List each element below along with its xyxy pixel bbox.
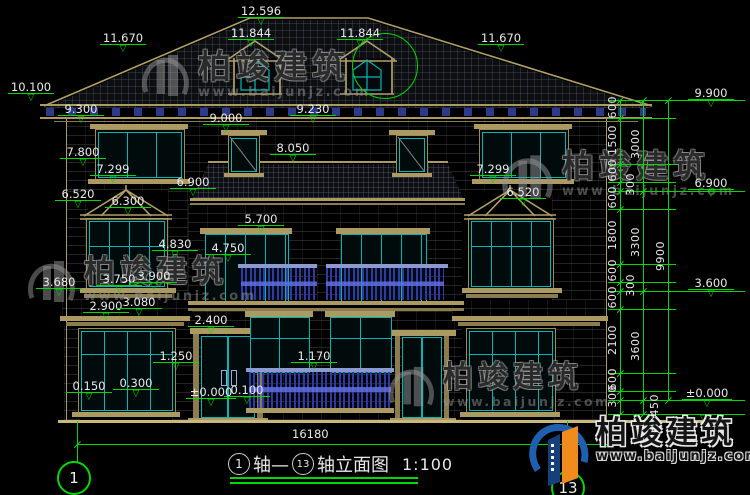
level-annotation: 6.520▽ (55, 188, 101, 209)
level-annotation: 11.670▽ (478, 32, 524, 53)
level-annotation: 6.300▽ (105, 195, 151, 216)
level-annotation: 10.100▽ (8, 81, 54, 102)
level-annotation: 3.080▽ (116, 296, 162, 317)
level-annotation: 6.900▽ (170, 176, 216, 197)
level-annotation-right: ±0.000▽ (682, 387, 732, 408)
elevation-drawing-sheet: 柏竣建筑 www.baijunjz.com 柏竣建筑 www.baijunjz.… (0, 0, 750, 495)
title-axis-circle-start: 1 (228, 453, 250, 475)
dim-floor: 3300 (629, 227, 642, 257)
dim-segment: 1500 (606, 125, 619, 155)
dim-total-height: 9900 (654, 241, 667, 271)
drawing-title: 1 轴— 13 轴立面图 1:100 (228, 451, 453, 477)
dim-floor: 3000 (629, 129, 642, 159)
level-annotation: 4.750▽ (205, 242, 251, 263)
dim-segment: 600 (606, 186, 619, 209)
dim-segment: 600 (606, 286, 619, 309)
level-annotation: 8.050▽ (270, 142, 316, 163)
dim-segment: 2100 (606, 325, 619, 355)
dim-segment: 1800 (606, 220, 619, 250)
level-annotation: 11.844▽ (337, 27, 383, 48)
level-annotation: 5.700▽ (238, 213, 284, 234)
level-annotation: 3.900▽ (131, 270, 177, 291)
dim-segment: 300 (606, 385, 619, 408)
level-annotation-right: 6.900▽ (688, 177, 734, 198)
level-annotation: 0.150▽ (66, 380, 112, 401)
title-scale: 1:100 (402, 455, 453, 474)
brand-name: 柏竣建筑 (596, 418, 750, 449)
brand-logo-icon (528, 418, 590, 490)
title-underline (230, 482, 418, 484)
level-annotation: 9.300▽ (58, 103, 104, 124)
level-annotation: 12.596▽ (238, 5, 284, 26)
title-text: 轴— (253, 451, 289, 477)
level-annotation: 7.299▽ (90, 163, 136, 184)
level-annotation: 3.680▽ (36, 276, 82, 297)
level-annotation-right: 9.900▽ (688, 87, 734, 108)
title-text: 轴立面图 (317, 451, 389, 477)
level-annotation: 11.844▽ (228, 27, 274, 48)
level-annotation: 9.000▽ (203, 112, 249, 133)
level-annotation: 4.830▽ (152, 238, 198, 259)
dim-segment: 600 (606, 96, 619, 119)
level-annotation: 1.170▽ (291, 350, 337, 371)
level-annotation: 11.670▽ (100, 32, 146, 53)
title-underline (230, 477, 418, 479)
axis-bubble-1: 1 (57, 461, 91, 495)
dim-segment: 600 (606, 159, 619, 182)
level-annotation: 0.100▽ (224, 384, 270, 405)
level-annotation: 9.230▽ (290, 103, 336, 124)
level-annotation: 7.299▽ (470, 163, 516, 184)
dim-floor: 450 (648, 394, 661, 417)
level-annotation-right: 3.600▽ (688, 277, 734, 298)
level-annotation: 2.400▽ (188, 314, 234, 335)
title-axis-circle-end: 13 (292, 453, 314, 475)
level-annotation: 6.520▽ (500, 186, 546, 207)
dim-floor: 3600 (629, 331, 642, 361)
brand-logo: 柏竣建筑 www.baijunjz.com (528, 418, 750, 490)
level-annotation: 0.300▽ (113, 377, 159, 398)
dim-segment: 300 (624, 274, 637, 297)
dim-segment: 600 (606, 259, 619, 282)
dim-total-width: 16180 (292, 427, 329, 441)
brand-url: www.baijunjz.com (596, 449, 750, 464)
level-annotation: 1.250▽ (153, 350, 199, 371)
dim-segment: 300 (624, 173, 637, 196)
